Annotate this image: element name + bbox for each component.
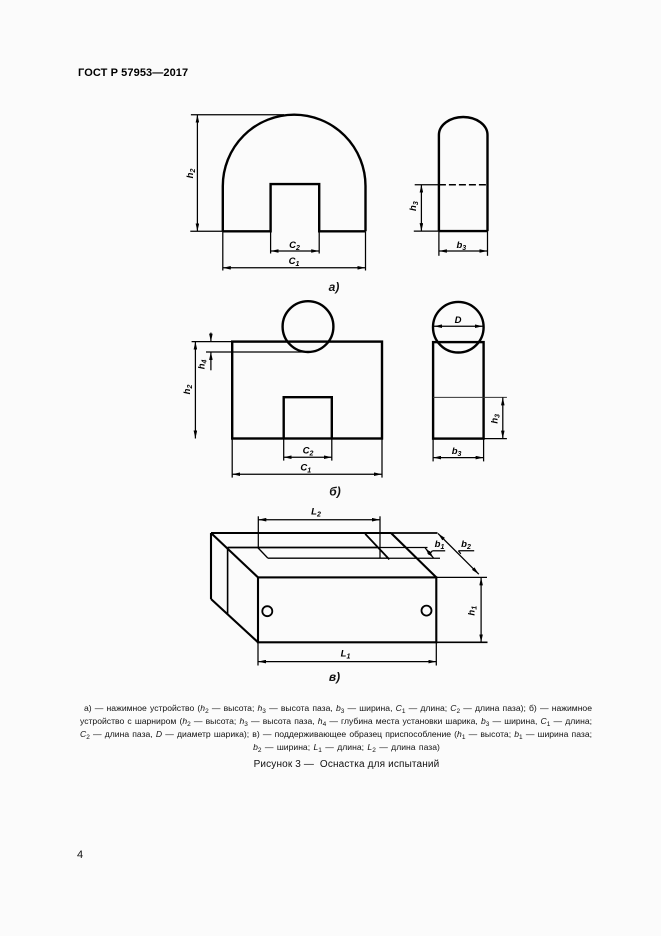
svg-text:b3: b3	[456, 240, 466, 252]
svg-text:h2: h2	[182, 385, 194, 395]
svg-text:b3: b3	[452, 446, 462, 458]
svg-text:б): б)	[329, 485, 340, 499]
svg-text:L2: L2	[311, 507, 321, 519]
svg-text:L1: L1	[341, 648, 351, 660]
svg-text:h3: h3	[408, 201, 420, 211]
svg-text:h3: h3	[489, 414, 501, 424]
svg-text:h1: h1	[466, 606, 478, 616]
svg-text:h4: h4	[197, 359, 209, 369]
svg-text:C1: C1	[289, 256, 300, 268]
svg-text:b1: b1	[435, 539, 445, 551]
svg-text:C2: C2	[289, 240, 300, 252]
svg-text:b2: b2	[461, 539, 471, 551]
svg-text:C2: C2	[303, 446, 314, 458]
svg-text:в): в)	[329, 670, 340, 684]
svg-text:h2: h2	[185, 169, 197, 179]
svg-text:C1: C1	[300, 462, 311, 474]
svg-text:а): а)	[329, 280, 340, 294]
svg-text:D: D	[455, 315, 462, 326]
